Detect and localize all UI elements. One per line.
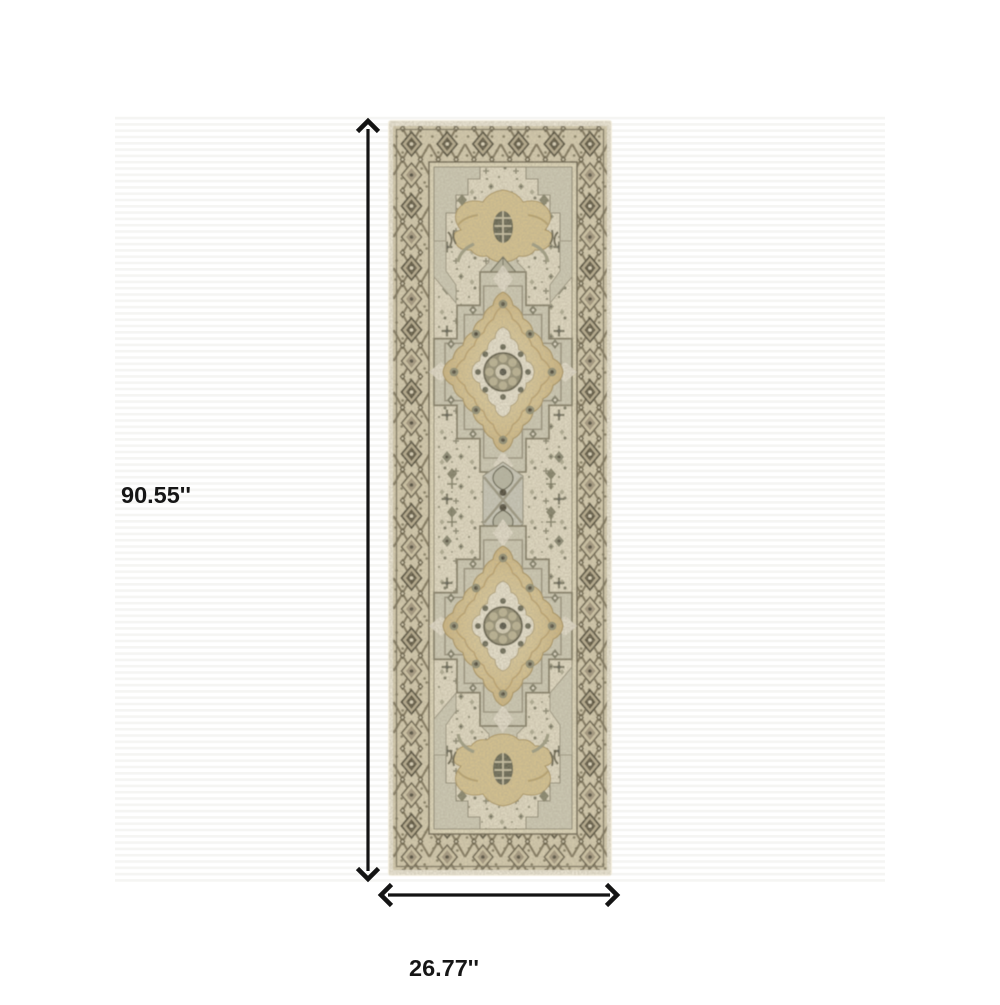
svg-text:90.55'': 90.55'' <box>121 482 191 508</box>
svg-text:26.77'': 26.77'' <box>409 955 479 981</box>
